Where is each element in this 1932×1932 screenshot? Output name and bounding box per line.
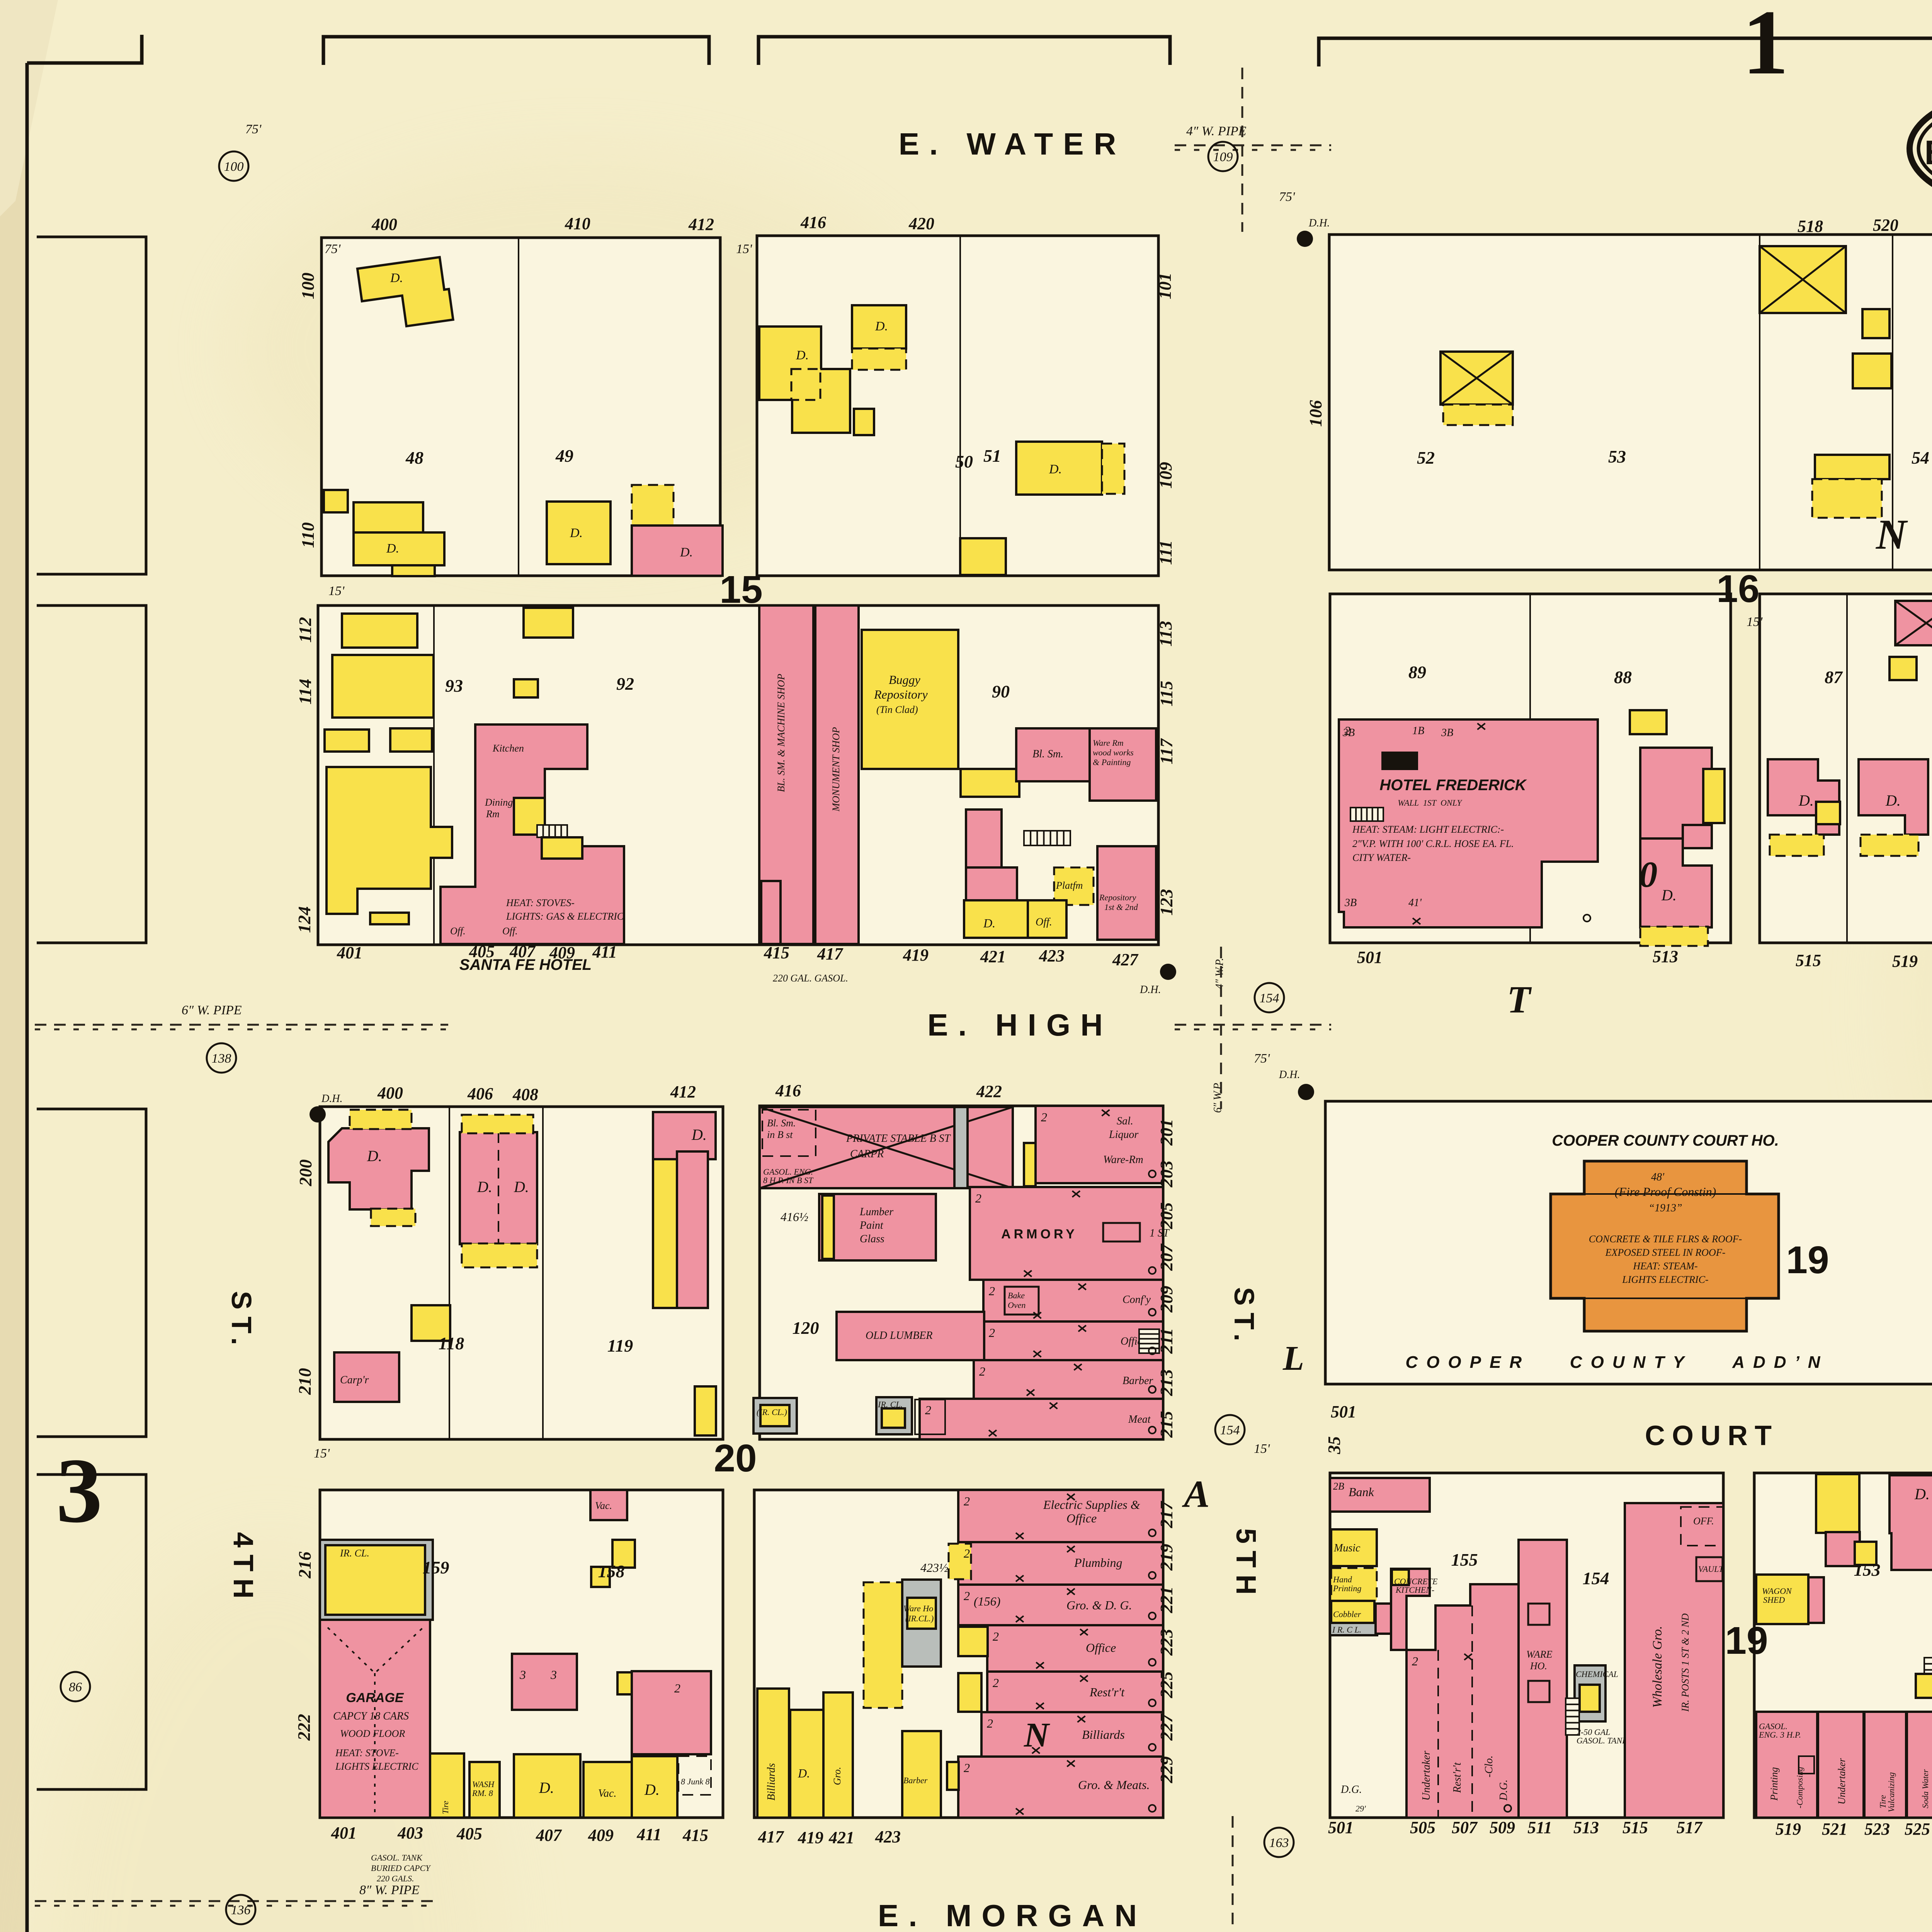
svg-text:407: 407 (536, 1826, 562, 1845)
svg-text:222: 222 (294, 1714, 314, 1741)
svg-text:3: 3 (56, 1439, 102, 1542)
svg-text:HO.: HO. (1530, 1660, 1547, 1672)
svg-text:513: 513 (1653, 947, 1678, 966)
svg-text:518: 518 (1798, 217, 1823, 236)
svg-text:Undertaker: Undertaker (1420, 1751, 1432, 1801)
svg-text:HEAT: STOVE-: HEAT: STOVE- (335, 1747, 399, 1759)
svg-text:407: 407 (509, 942, 536, 961)
svg-text:423½: 423½ (920, 1561, 948, 1575)
svg-text:211: 211 (1156, 1328, 1176, 1354)
svg-text:220 GALS.: 220 GALS. (377, 1874, 414, 1883)
svg-text:415: 415 (764, 943, 789, 962)
svg-text:Carp'r: Carp'r (340, 1374, 369, 1386)
svg-text:505: 505 (1410, 1818, 1435, 1837)
svg-text:2: 2 (674, 1681, 680, 1695)
svg-text:19: 19 (1725, 1619, 1768, 1662)
svg-text:219: 219 (1156, 1544, 1176, 1571)
svg-text:in B st: in B st (767, 1129, 793, 1140)
svg-text:Office: Office (1066, 1511, 1097, 1525)
svg-text:155: 155 (1451, 1550, 1478, 1570)
svg-text:53: 53 (1608, 447, 1626, 466)
svg-text:A: A (1182, 1473, 1210, 1515)
svg-text:223: 223 (1156, 1629, 1176, 1656)
svg-text:VAULT: VAULT (1698, 1564, 1724, 1574)
svg-text:49: 49 (555, 446, 573, 466)
svg-text:HOTEL FREDERICK: HOTEL FREDERICK (1379, 777, 1527, 794)
svg-text:D.: D. (680, 545, 693, 560)
svg-text:ARMORY: ARMORY (1001, 1227, 1078, 1242)
svg-text:D.: D. (1914, 1485, 1930, 1503)
svg-text:Gro.: Gro. (832, 1767, 843, 1785)
svg-text:427: 427 (1112, 950, 1139, 969)
svg-text:421: 421 (828, 1828, 854, 1847)
svg-text:509: 509 (1490, 1818, 1515, 1837)
svg-text:416: 416 (800, 213, 826, 232)
svg-text:41': 41' (1408, 897, 1422, 909)
svg-text:D.: D. (1798, 792, 1814, 809)
svg-text:Dining: Dining (485, 797, 513, 808)
svg-text:Soda Water: Soda Water (1920, 1769, 1930, 1808)
svg-text:423: 423 (875, 1827, 901, 1846)
svg-text:8 H.P. IN B ST: 8 H.P. IN B ST (763, 1175, 814, 1185)
svg-text:114: 114 (295, 679, 315, 704)
svg-text:Barber: Barber (903, 1776, 928, 1785)
svg-text:L: L (1282, 1339, 1304, 1378)
svg-text:Billiards: Billiards (765, 1763, 777, 1801)
svg-text:-Clo.: -Clo. (1483, 1755, 1495, 1777)
svg-text:GARAGE: GARAGE (346, 1690, 404, 1705)
svg-text:525: 525 (1905, 1820, 1930, 1838)
svg-text:2: 2 (1412, 1654, 1418, 1668)
svg-text:210: 210 (295, 1368, 315, 1395)
svg-text:507: 507 (1452, 1818, 1478, 1837)
svg-text:88: 88 (1614, 667, 1632, 687)
svg-text:D.: D. (514, 1178, 529, 1196)
svg-text:2: 2 (993, 1676, 999, 1690)
svg-text:CITY WATER-: CITY WATER- (1352, 852, 1411, 863)
svg-text:201: 201 (1156, 1119, 1176, 1146)
svg-text:400: 400 (371, 215, 397, 234)
svg-text:513: 513 (1573, 1818, 1599, 1837)
svg-text:159: 159 (423, 1558, 449, 1577)
svg-text:93: 93 (445, 676, 463, 696)
svg-text:WAGON: WAGON (1762, 1586, 1792, 1596)
svg-text:213: 213 (1156, 1369, 1176, 1396)
svg-text:15': 15' (1254, 1442, 1270, 1456)
svg-text:519: 519 (1776, 1820, 1801, 1838)
svg-text:(156): (156) (974, 1594, 1000, 1608)
svg-text:Printing: Printing (1333, 1583, 1361, 1593)
svg-text:CHEMICAL: CHEMICAL (1576, 1669, 1618, 1679)
svg-text:8″ W. PIPE: 8″ W. PIPE (359, 1883, 420, 1897)
svg-text:16: 16 (1716, 567, 1759, 611)
svg-text:ST.: ST. (226, 1291, 257, 1352)
svg-text:15': 15' (1747, 615, 1763, 629)
svg-text:Paint: Paint (859, 1219, 884, 1231)
svg-text:110: 110 (298, 522, 318, 548)
svg-text:89: 89 (1408, 662, 1426, 682)
svg-text:2: 2 (989, 1284, 995, 1298)
svg-text:54: 54 (1912, 448, 1929, 468)
svg-text:111: 111 (1156, 540, 1175, 565)
svg-text:154: 154 (1260, 991, 1279, 1005)
svg-text:Oven: Oven (1008, 1300, 1026, 1310)
svg-text:WASH: WASH (472, 1779, 495, 1789)
svg-text:19: 19 (1786, 1238, 1829, 1282)
svg-text:BL. SM. & MACHINE SHOP: BL. SM. & MACHINE SHOP (776, 674, 787, 792)
svg-text:2: 2 (925, 1403, 931, 1417)
svg-text:D.: D. (367, 1147, 382, 1165)
svg-text:227: 227 (1156, 1713, 1176, 1741)
svg-text:Sal.: Sal. (1117, 1115, 1133, 1127)
svg-text:101: 101 (1155, 273, 1175, 299)
svg-text:OLD LUMBER: OLD LUMBER (866, 1330, 932, 1342)
svg-text:419: 419 (903, 946, 929, 964)
svg-text:“1913”: “1913” (1648, 1202, 1682, 1214)
svg-text:158: 158 (598, 1561, 625, 1581)
svg-text:3B: 3B (1441, 727, 1453, 739)
svg-text:Vulcanizing: Vulcanizing (1886, 1772, 1896, 1812)
svg-text:Fact'y: Fact'y (1930, 1779, 1932, 1801)
svg-text:D.: D. (798, 1766, 810, 1780)
svg-text:50: 50 (955, 452, 973, 471)
svg-text:406: 406 (467, 1084, 493, 1103)
svg-text:2: 2 (989, 1326, 995, 1340)
svg-text:415: 415 (682, 1826, 708, 1845)
svg-text:124: 124 (294, 906, 314, 933)
svg-text:Off.: Off. (1036, 916, 1052, 928)
svg-text:Hand: Hand (1333, 1575, 1352, 1584)
svg-text:Ware Rm: Ware Rm (1093, 738, 1124, 748)
svg-text:2: 2 (964, 1761, 970, 1775)
svg-text:D.: D. (390, 271, 403, 285)
svg-text:Liquor: Liquor (1109, 1129, 1138, 1141)
svg-text:LIGHTS: GAS & ELECTRIC: LIGHTS: GAS & ELECTRIC (506, 911, 624, 922)
svg-text:216: 216 (295, 1552, 315, 1579)
svg-text:D.H.: D.H. (1139, 984, 1161, 996)
svg-text:D.: D. (983, 916, 995, 930)
svg-text:411: 411 (592, 942, 617, 961)
svg-text:MONUMENT SHOP: MONUMENT SHOP (830, 727, 842, 812)
svg-text:515: 515 (1622, 1818, 1648, 1837)
svg-text:D.: D. (796, 348, 809, 362)
svg-text:225: 225 (1156, 1672, 1176, 1699)
svg-text:75': 75' (245, 122, 262, 136)
svg-text:3: 3 (550, 1668, 557, 1682)
svg-text:ENG. 3 H.P.: ENG. 3 H.P. (1759, 1730, 1801, 1740)
svg-text:90: 90 (992, 682, 1010, 701)
svg-text:1: 1 (1742, 0, 1789, 94)
svg-text:205: 205 (1156, 1202, 1176, 1230)
svg-text:D.: D. (1049, 462, 1062, 476)
svg-text:200: 200 (296, 1160, 315, 1187)
svg-text:2: 2 (964, 1589, 970, 1603)
svg-text:2: 2 (979, 1364, 985, 1378)
svg-text:Bank: Bank (1349, 1485, 1374, 1499)
svg-text:412: 412 (688, 215, 714, 234)
svg-text:CONCRETE & TILE FLRS & ROOF-: CONCRETE & TILE FLRS & ROOF- (1589, 1233, 1742, 1245)
svg-text:E. MORGAN: E. MORGAN (878, 1898, 1147, 1932)
svg-text:Repository: Repository (1099, 893, 1136, 902)
svg-text:D.G.: D.G. (1498, 1780, 1510, 1801)
svg-text:217: 217 (1156, 1501, 1176, 1529)
svg-text:400: 400 (377, 1083, 403, 1102)
svg-text:Gro. & Meats.: Gro. & Meats. (1078, 1778, 1150, 1792)
svg-text:(IR. CL.): (IR. CL.) (757, 1407, 787, 1417)
svg-text:405: 405 (456, 1824, 482, 1843)
svg-text:8 Junk 8: 8 Junk 8 (681, 1777, 710, 1786)
svg-text:IR. POSTS 1 ST & 2 ND: IR. POSTS 1 ST & 2 ND (1680, 1613, 1691, 1712)
svg-text:Off.: Off. (502, 925, 518, 937)
svg-text:LIGHTS ELECTRIC: LIGHTS ELECTRIC (335, 1761, 418, 1772)
svg-text:501: 501 (1331, 1402, 1356, 1421)
svg-text:WOOD FLOOR: WOOD FLOOR (340, 1728, 405, 1739)
svg-text:Office: Office (1086, 1641, 1116, 1655)
svg-text:Wholesale Gro.: Wholesale Gro. (1650, 1626, 1665, 1708)
svg-text:D.: D. (691, 1126, 707, 1143)
svg-text:523: 523 (1864, 1820, 1890, 1838)
svg-text:D.: D. (570, 526, 583, 540)
svg-text:409: 409 (588, 1826, 614, 1845)
svg-text:117: 117 (1156, 738, 1176, 764)
svg-text:75': 75' (1279, 190, 1295, 204)
svg-text:417: 417 (758, 1827, 784, 1846)
svg-text:Buggy: Buggy (889, 673, 921, 687)
svg-text:Printing: Printing (1769, 1767, 1780, 1801)
svg-text:Gro. & D. G.: Gro. & D. G. (1066, 1598, 1132, 1612)
svg-text:RM. 8: RM. 8 (472, 1788, 493, 1798)
svg-text:D.H.: D.H. (321, 1093, 342, 1105)
svg-text:416: 416 (775, 1081, 801, 1100)
svg-text:100: 100 (224, 160, 244, 174)
svg-text:15': 15' (328, 584, 345, 598)
svg-text:0: 0 (1639, 854, 1658, 895)
svg-text:Bl. Sm.: Bl. Sm. (1032, 748, 1063, 760)
svg-text:515: 515 (1796, 951, 1821, 970)
svg-text:138: 138 (212, 1051, 231, 1066)
svg-text:D.: D. (1661, 886, 1677, 904)
svg-text:E. HIGH: E. HIGH (927, 1008, 1113, 1042)
svg-text:Vac.: Vac. (598, 1787, 616, 1799)
svg-text:WALL 1ST ONLY: WALL 1ST ONLY (1398, 798, 1463, 808)
svg-text:511: 511 (1527, 1818, 1552, 1837)
svg-text:Meat: Meat (1128, 1413, 1151, 1425)
svg-text:CARPR: CARPR (850, 1148, 884, 1160)
svg-text:405: 405 (469, 942, 495, 961)
svg-text:Music: Music (1333, 1542, 1361, 1554)
svg-text:4″ W.P.: 4″ W.P. (1214, 958, 1226, 989)
svg-text:3: 3 (519, 1668, 526, 1682)
svg-text:D.: D. (539, 1779, 554, 1796)
svg-text:E. WATER: E. WATER (899, 127, 1126, 161)
svg-text:409: 409 (549, 943, 575, 962)
svg-text:Plumbing: Plumbing (1074, 1556, 1122, 1570)
svg-text:15: 15 (719, 568, 762, 611)
svg-text:D.: D. (875, 319, 888, 333)
svg-text:(Tin Clad): (Tin Clad) (876, 704, 918, 715)
svg-text:48: 48 (405, 448, 423, 468)
svg-text:Repository: Repository (874, 687, 928, 701)
svg-text:SHED: SHED (1763, 1595, 1785, 1605)
svg-text:PRIVATE STABLE B ST: PRIVATE STABLE B ST (846, 1133, 951, 1145)
svg-text:109: 109 (1156, 462, 1175, 489)
svg-text:29': 29' (1355, 1804, 1366, 1813)
svg-text:52: 52 (1417, 448, 1435, 468)
svg-text:BURIED CAPCY: BURIED CAPCY (371, 1863, 431, 1873)
svg-text:Tire: Tire (440, 1801, 450, 1814)
svg-text:221: 221 (1156, 1587, 1176, 1614)
svg-text:GASOL. TANK: GASOL. TANK (371, 1853, 423, 1862)
svg-text:419: 419 (798, 1828, 823, 1847)
svg-text:106: 106 (1306, 400, 1325, 427)
svg-text:D.H.: D.H. (1308, 217, 1330, 229)
svg-text:15': 15' (736, 242, 752, 256)
svg-text:2: 2 (1344, 724, 1350, 738)
svg-text:411: 411 (636, 1825, 662, 1844)
svg-text:Conf'y: Conf'y (1122, 1294, 1151, 1306)
svg-text:ST.: ST. (1228, 1287, 1259, 1348)
svg-text:1B: 1B (1412, 725, 1424, 737)
svg-text:Ware Ho: Ware Ho (903, 1604, 933, 1613)
svg-text:422: 422 (976, 1082, 1002, 1101)
svg-text:51: 51 (983, 446, 1001, 466)
svg-text:(IR.CL.): (IR.CL.) (905, 1614, 934, 1623)
svg-text:HEAT: STEAM-: HEAT: STEAM- (1633, 1260, 1697, 1272)
svg-text:113: 113 (1156, 621, 1175, 646)
svg-text:Rm: Rm (486, 808, 500, 820)
svg-text:(Fire Proof Constin): (Fire Proof Constin) (1615, 1185, 1716, 1199)
svg-text:Undertaker: Undertaker (1836, 1758, 1847, 1804)
svg-text:LIGHTS ELECTRIC-: LIGHTS ELECTRIC- (1622, 1274, 1708, 1285)
svg-text:75': 75' (325, 242, 341, 256)
svg-text:92: 92 (616, 674, 634, 694)
svg-text:I R. C L.: I R. C L. (1332, 1625, 1361, 1634)
svg-text:IR. CL.: IR. CL. (878, 1400, 903, 1409)
svg-text:403: 403 (397, 1823, 423, 1842)
svg-text:N: N (1875, 511, 1908, 558)
svg-text:Rest'r't: Rest'r't (1089, 1685, 1125, 1699)
svg-text:203: 203 (1156, 1161, 1176, 1188)
svg-text:401: 401 (337, 943, 362, 962)
svg-text:EXPOSED STEEL IN ROOF-: EXPOSED STEEL IN ROOF- (1605, 1247, 1726, 1258)
svg-text:Platfm: Platfm (1056, 880, 1083, 891)
svg-text:154: 154 (1220, 1423, 1240, 1437)
svg-text:Kitchen: Kitchen (492, 743, 524, 754)
svg-text:D.: D. (1885, 792, 1901, 809)
svg-text:COOPER COUNTY ADD’N: COOPER COUNTY ADD’N (1405, 1353, 1828, 1372)
svg-text:420: 420 (908, 214, 934, 233)
svg-text:401: 401 (331, 1823, 357, 1842)
svg-text:100: 100 (298, 273, 318, 299)
svg-text:123: 123 (1156, 889, 1176, 916)
svg-text:215: 215 (1156, 1411, 1176, 1438)
svg-text:417: 417 (817, 944, 844, 963)
svg-text:D.: D. (477, 1178, 492, 1196)
svg-text:2: 2 (964, 1494, 970, 1508)
svg-text:408: 408 (512, 1085, 538, 1104)
svg-text:120: 120 (793, 1318, 819, 1338)
svg-text:86: 86 (69, 1680, 82, 1694)
svg-text:2″V.P. WITH 100' C.R.L. HOSE E: 2″V.P. WITH 100' C.R.L. HOSE EA. FL. (1352, 838, 1514, 849)
svg-text:519: 519 (1892, 952, 1918, 971)
svg-text:229: 229 (1156, 1757, 1176, 1784)
svg-text:520: 520 (1873, 216, 1898, 235)
svg-text:4TH: 4TH (228, 1532, 259, 1605)
svg-text:2B: 2B (1333, 1481, 1344, 1492)
svg-text:410: 410 (565, 214, 590, 233)
svg-text:IR. CL.: IR. CL. (340, 1548, 369, 1559)
svg-text:207: 207 (1156, 1243, 1176, 1271)
svg-text:Glass: Glass (860, 1233, 884, 1245)
svg-text:BOONVILLE: BOONVILLE (1924, 133, 1932, 172)
svg-text:Bl. Sm.: Bl. Sm. (767, 1117, 796, 1129)
svg-text:6″ W. PIPE: 6″ W. PIPE (182, 1003, 242, 1017)
svg-text:OFF.: OFF. (1693, 1515, 1714, 1527)
svg-text:20: 20 (714, 1437, 757, 1480)
svg-text:2: 2 (1041, 1110, 1047, 1124)
svg-text:15': 15' (314, 1446, 330, 1461)
svg-text:D.G.: D.G. (1340, 1784, 1362, 1796)
svg-text:412: 412 (670, 1082, 696, 1101)
svg-text:517: 517 (1677, 1818, 1703, 1837)
svg-text:Electric Supplies &: Electric Supplies & (1043, 1498, 1140, 1512)
svg-text:423: 423 (1039, 946, 1065, 965)
svg-text:CAPCY 18 CARS: CAPCY 18 CARS (333, 1710, 409, 1722)
svg-text:2: 2 (975, 1191, 981, 1205)
svg-text:153: 153 (1854, 1560, 1881, 1580)
svg-text:421: 421 (980, 947, 1006, 966)
svg-text:501: 501 (1357, 948, 1383, 967)
svg-text:Lumber: Lumber (859, 1206, 893, 1218)
svg-text:2: 2 (987, 1716, 993, 1730)
svg-text:119: 119 (607, 1336, 633, 1355)
svg-text:Bake: Bake (1008, 1291, 1025, 1300)
svg-text:87: 87 (1825, 667, 1843, 687)
svg-text:2: 2 (964, 1546, 970, 1560)
svg-text:Cobbler: Cobbler (1333, 1609, 1361, 1619)
svg-text:D.: D. (644, 1781, 660, 1798)
svg-text:Off.: Off. (450, 925, 466, 937)
svg-text:209: 209 (1156, 1286, 1176, 1313)
svg-text:4″ W. PIPE: 4″ W. PIPE (1186, 124, 1247, 138)
svg-text:COURT: COURT (1645, 1420, 1779, 1451)
svg-text:112: 112 (295, 617, 315, 643)
svg-text:2: 2 (993, 1629, 999, 1643)
svg-text:& Painting: & Painting (1093, 757, 1131, 767)
svg-text:Rest'r't: Rest'r't (1451, 1762, 1463, 1793)
svg-text:wood works: wood works (1093, 748, 1134, 757)
svg-text:HEAT: STOVES-: HEAT: STOVES- (506, 897, 575, 908)
svg-text:416½: 416½ (781, 1210, 808, 1224)
svg-text:Barber: Barber (1122, 1375, 1153, 1387)
svg-text:136: 136 (231, 1903, 251, 1917)
svg-text:48': 48' (1651, 1171, 1665, 1183)
svg-text:1st & 2nd: 1st & 2nd (1104, 902, 1138, 912)
svg-text:WARE: WARE (1526, 1649, 1553, 1660)
svg-text:75': 75' (1254, 1051, 1270, 1066)
svg-text:521: 521 (1822, 1820, 1847, 1838)
svg-text:220 GAL. GASOL.: 220 GAL. GASOL. (773, 973, 848, 984)
svg-text:115: 115 (1156, 681, 1176, 706)
svg-text:T: T (1507, 978, 1532, 1021)
svg-text:5TH: 5TH (1230, 1528, 1261, 1602)
svg-text:Billiards: Billiards (1082, 1728, 1125, 1742)
svg-text:Ware-Rm: Ware-Rm (1103, 1154, 1143, 1166)
svg-text:Vac.: Vac. (595, 1500, 612, 1511)
svg-text:163: 163 (1269, 1836, 1289, 1850)
svg-text:35: 35 (1324, 1436, 1344, 1454)
svg-text:109: 109 (1213, 150, 1233, 164)
